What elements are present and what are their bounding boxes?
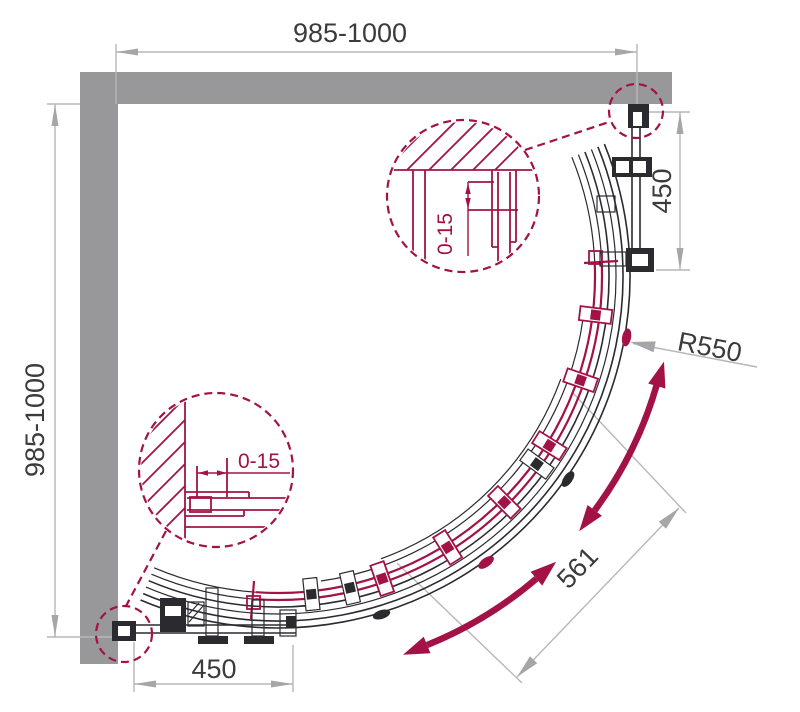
overall-width-label: 985-1000	[293, 18, 407, 48]
technical-drawing-page: 985-1000 985-1000 450 450 561	[0, 0, 800, 712]
dim-right-side: 450	[647, 112, 690, 270]
detail-bottom-adjustment-label: 0-15	[238, 450, 280, 473]
fixed-panel-bottom-left	[112, 588, 296, 644]
detail-top-adjustment-label: 0-15	[434, 213, 457, 255]
opening-width-label: 561	[551, 541, 604, 594]
side-panel-bottom-label: 450	[191, 654, 236, 684]
slide-arrow-lower	[403, 562, 556, 655]
detail-view-bottom	[131, 392, 290, 562]
wall-left	[80, 72, 118, 664]
drawing-canvas: 985-1000 985-1000 450 450 561	[0, 0, 800, 712]
fixed-panel-top-right	[597, 104, 654, 272]
door-radius-label: R550	[675, 326, 744, 368]
rail-arcs	[141, 144, 631, 628]
dim-bottom-side: 450	[134, 642, 293, 692]
wall-top	[80, 72, 672, 104]
radius-label: R550	[630, 326, 757, 368]
detail-view-top	[385, 116, 549, 266]
overall-depth-label: 985-1000	[20, 363, 50, 477]
